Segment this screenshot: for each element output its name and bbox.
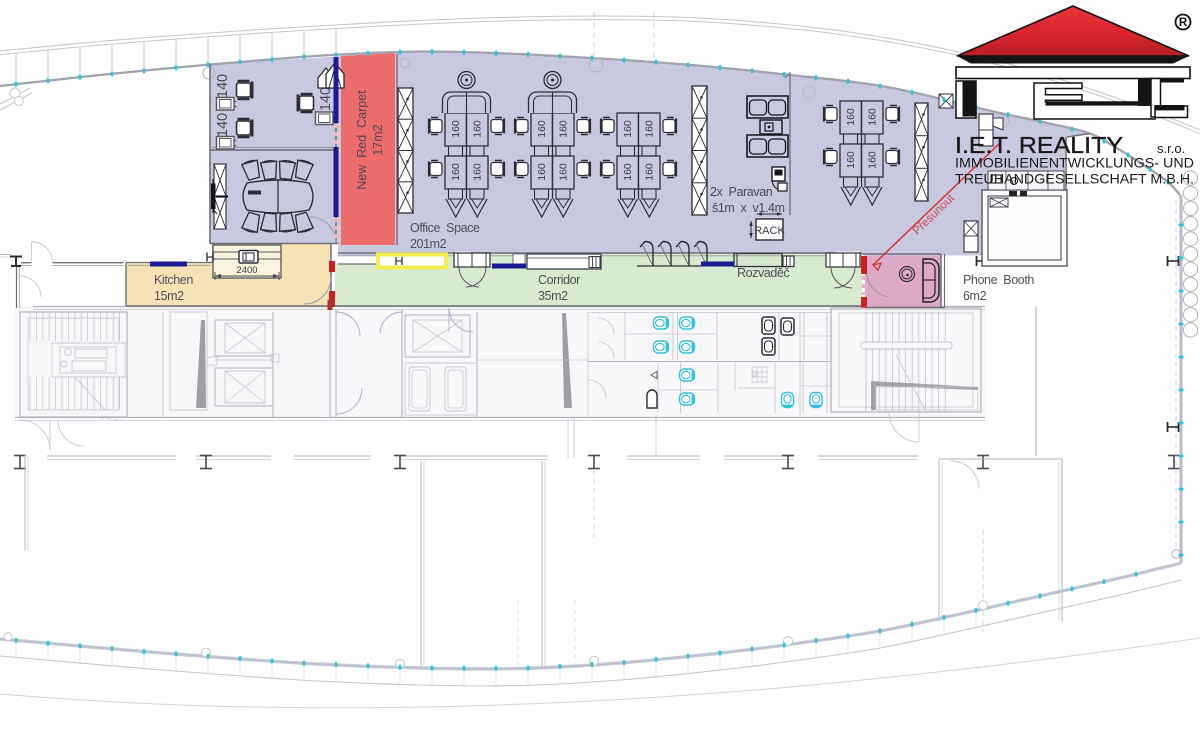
svg-text:160: 160 xyxy=(643,163,655,181)
svg-text:Office Space: Office Space xyxy=(410,221,480,235)
svg-text:160: 160 xyxy=(622,120,634,138)
svg-text:š1m x v1.4m: š1m x v1.4m xyxy=(712,201,785,215)
svg-text:160: 160 xyxy=(866,108,878,126)
svg-text:160: 160 xyxy=(845,151,857,169)
svg-text:160: 160 xyxy=(866,151,878,169)
svg-text:160: 160 xyxy=(450,163,462,181)
svg-text:160: 160 xyxy=(643,120,655,138)
svg-text:160: 160 xyxy=(845,108,857,126)
svg-text:160: 160 xyxy=(622,163,634,181)
svg-text:35m2: 35m2 xyxy=(538,289,568,303)
svg-text:Kitchen: Kitchen xyxy=(154,273,193,287)
svg-text:6m2: 6m2 xyxy=(963,289,987,303)
svg-text:160: 160 xyxy=(450,120,462,138)
svg-text:140: 140 xyxy=(318,87,334,111)
svg-text:140: 140 xyxy=(215,74,231,98)
svg-text:160: 160 xyxy=(471,120,483,138)
svg-text:2x Paravan: 2x Paravan xyxy=(710,185,773,199)
svg-text:160: 160 xyxy=(471,163,483,181)
svg-text:160: 160 xyxy=(557,163,569,181)
svg-text:R: R xyxy=(1179,17,1188,29)
svg-text:New Red Carpet: New Red Carpet xyxy=(355,90,369,190)
svg-text:Rozvaděč: Rozvaděč xyxy=(737,266,790,280)
svg-text:Phone Booth: Phone Booth xyxy=(963,273,1034,287)
svg-text:160: 160 xyxy=(557,120,569,138)
svg-text:160: 160 xyxy=(536,120,548,138)
svg-text:2400: 2400 xyxy=(236,265,257,276)
svg-text:Corridor: Corridor xyxy=(538,273,580,287)
svg-text:140: 140 xyxy=(215,113,231,137)
svg-text:RACK: RACK xyxy=(754,225,785,237)
svg-text:160: 160 xyxy=(536,163,548,181)
svg-text:201m2: 201m2 xyxy=(410,237,447,251)
svg-text:17m2: 17m2 xyxy=(371,124,385,155)
svg-text:IMMOBILIENENTWICKLUNGS- UND: IMMOBILIENENTWICKLUNGS- UND xyxy=(955,155,1194,171)
svg-text:TREUHANDGESELLSCHAFT M.B.H.: TREUHANDGESELLSCHAFT M.B.H. xyxy=(955,171,1194,187)
svg-text:15m2: 15m2 xyxy=(154,289,184,303)
